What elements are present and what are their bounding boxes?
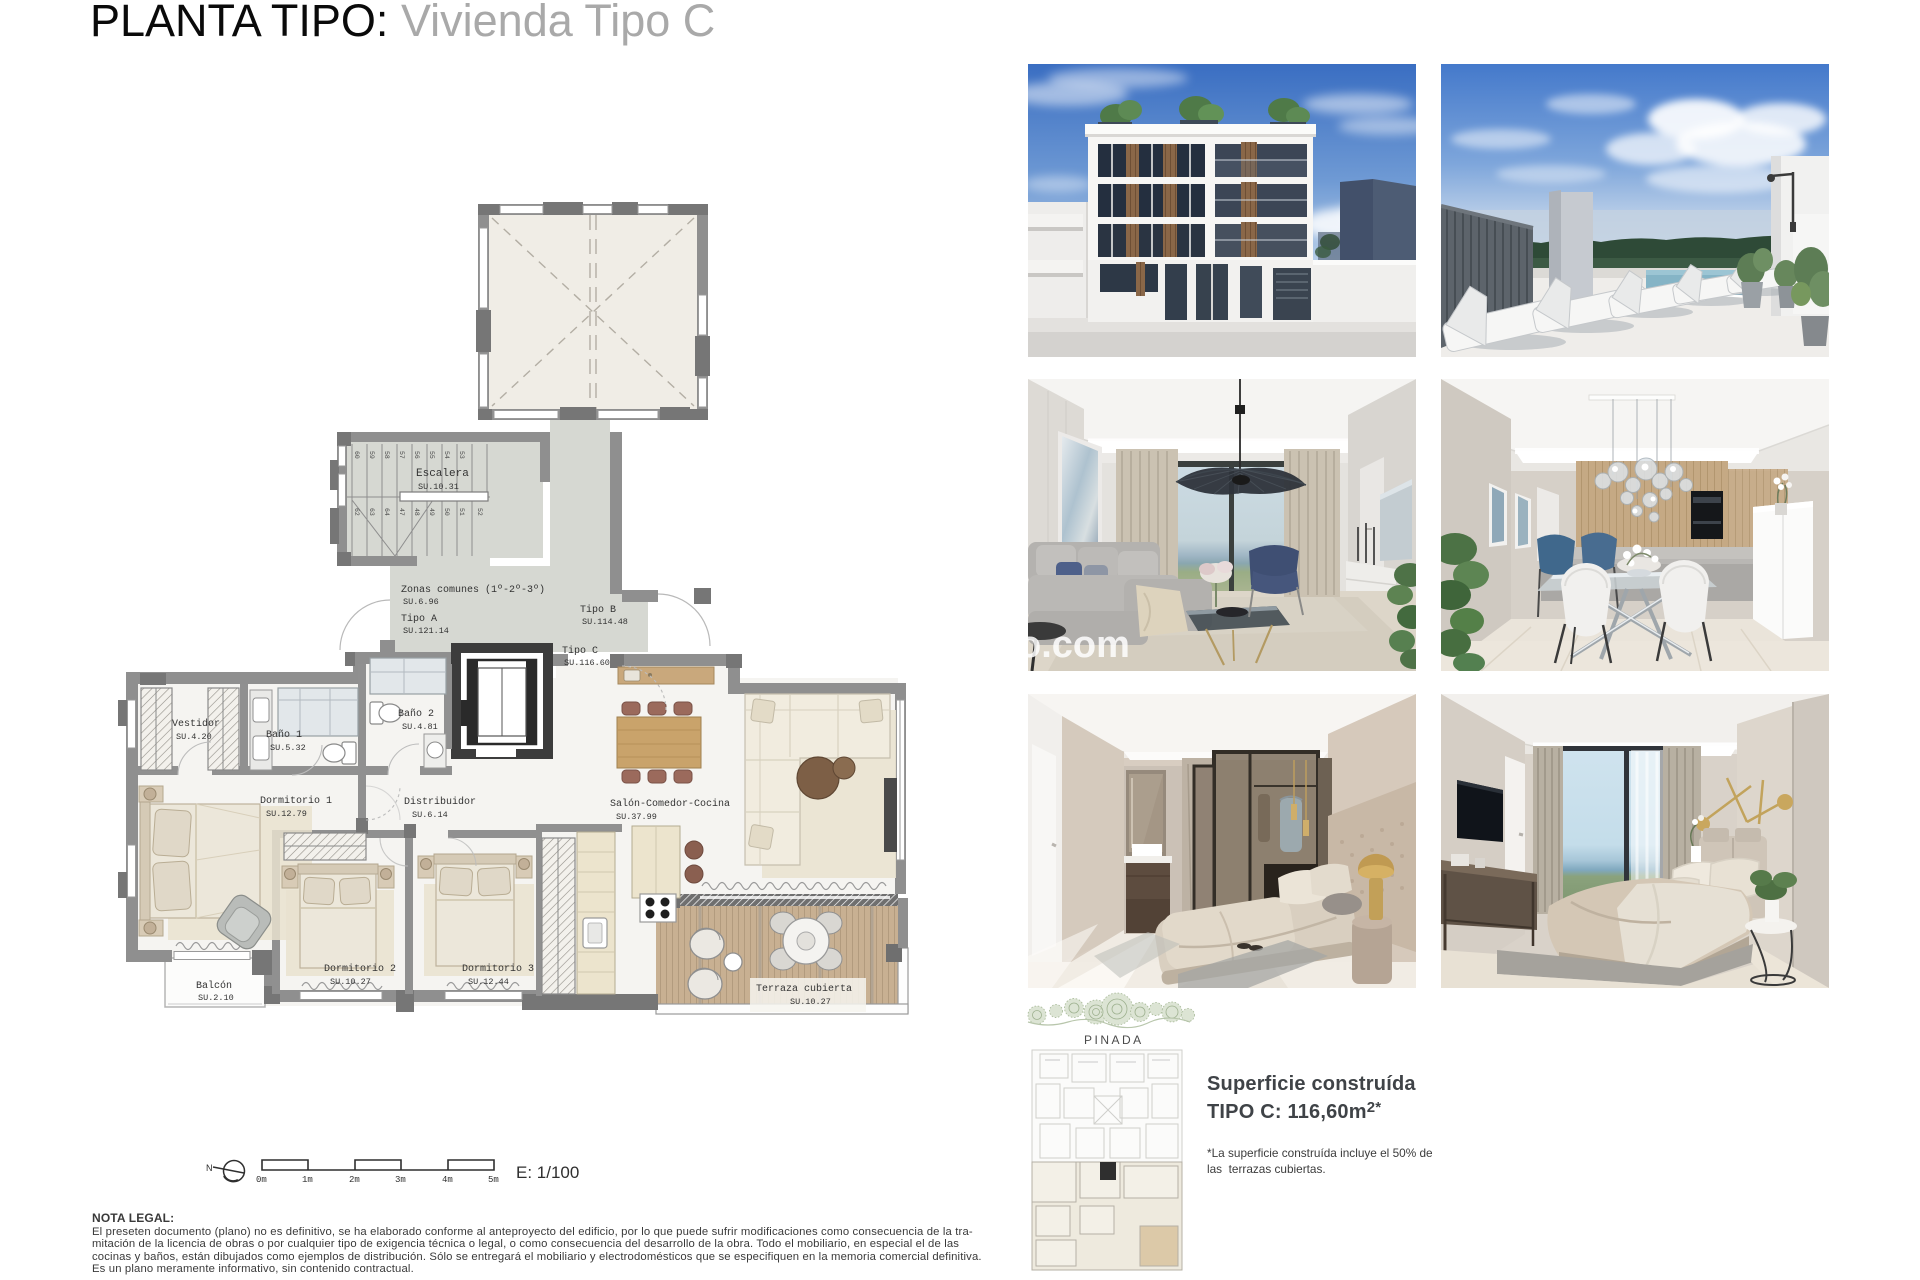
svg-text:Balcón: Balcón — [196, 980, 232, 992]
svg-text:Dormitorio 1: Dormitorio 1 — [260, 795, 332, 807]
svg-text:Distribuidor: Distribuidor — [404, 796, 476, 808]
svg-text:Dormitorio 3: Dormitorio 3 — [462, 963, 534, 975]
svg-text:54: 54 — [443, 451, 450, 459]
svg-text:Salón-Comedor-Cocina: Salón-Comedor-Cocina — [610, 798, 730, 810]
svg-text:Baño 2: Baño 2 — [398, 708, 434, 720]
svg-text:SU.10.31: SU.10.31 — [418, 482, 459, 492]
svg-text:49: 49 — [428, 508, 435, 516]
svg-text:1m: 1m — [302, 1175, 313, 1185]
svg-text:48: 48 — [413, 508, 420, 516]
svg-text:SU.6.96: SU.6.96 — [403, 597, 439, 607]
svg-text:62: 62 — [353, 508, 360, 516]
svg-text:50: 50 — [443, 508, 450, 516]
svg-text:59: 59 — [368, 451, 375, 459]
svg-text:Zonas comunes (1º-2º-3º): Zonas comunes (1º-2º-3º) — [401, 584, 545, 596]
svg-text:SU.4.81: SU.4.81 — [402, 722, 438, 732]
svg-text:3m: 3m — [395, 1175, 406, 1185]
svg-text:57: 57 — [398, 451, 405, 459]
svg-text:SU.37.99: SU.37.99 — [616, 812, 657, 822]
svg-text:SU.2.10: SU.2.10 — [198, 993, 234, 1003]
svg-text:63: 63 — [368, 508, 375, 516]
svg-text:Escalera: Escalera — [416, 468, 469, 480]
svg-text:SU.12.79: SU.12.79 — [266, 809, 307, 819]
svg-text:Terraza cubierta: Terraza cubierta — [756, 983, 852, 995]
svg-text:2m: 2m — [349, 1175, 360, 1185]
svg-text:0m: 0m — [256, 1175, 267, 1185]
svg-text:60: 60 — [353, 451, 360, 459]
svg-text:4m: 4m — [442, 1175, 453, 1185]
svg-text:Vestidor: Vestidor — [172, 718, 220, 730]
svg-text:47: 47 — [398, 508, 405, 516]
svg-text:SU.4.20: SU.4.20 — [176, 732, 212, 742]
svg-text:SU.6.14: SU.6.14 — [412, 810, 448, 820]
svg-text:51: 51 — [458, 508, 465, 516]
svg-text:64: 64 — [383, 508, 390, 516]
svg-text:N: N — [206, 1163, 213, 1173]
svg-text:Baño 1: Baño 1 — [266, 729, 302, 741]
svg-text:SU.114.48: SU.114.48 — [582, 617, 628, 627]
svg-text:Dormitorio 2: Dormitorio 2 — [324, 963, 396, 975]
svg-text:PINADA: PINADA — [1084, 1033, 1144, 1047]
svg-text:55: 55 — [428, 451, 435, 459]
svg-text:Tipo A: Tipo A — [401, 613, 437, 625]
svg-text:52: 52 — [476, 508, 483, 516]
svg-text:SU.116.60: SU.116.60 — [564, 658, 610, 668]
svg-text:58: 58 — [383, 451, 390, 459]
svg-text:Tipo C: Tipo C — [562, 645, 598, 657]
svg-text:5m: 5m — [488, 1175, 499, 1185]
svg-text:SU.12.44: SU.12.44 — [468, 977, 509, 987]
svg-text:o.com: o.com — [1028, 624, 1130, 666]
svg-text:53: 53 — [458, 451, 465, 459]
svg-text:E: 1/100: E: 1/100 — [516, 1163, 579, 1182]
svg-text:Tipo B: Tipo B — [580, 604, 616, 616]
svg-text:56: 56 — [413, 451, 420, 459]
svg-text:SU.10.27: SU.10.27 — [330, 977, 371, 987]
svg-text:SU.5.32: SU.5.32 — [270, 743, 306, 753]
svg-text:SU.10.27: SU.10.27 — [790, 997, 831, 1007]
svg-text:SU.121.14: SU.121.14 — [403, 626, 449, 636]
